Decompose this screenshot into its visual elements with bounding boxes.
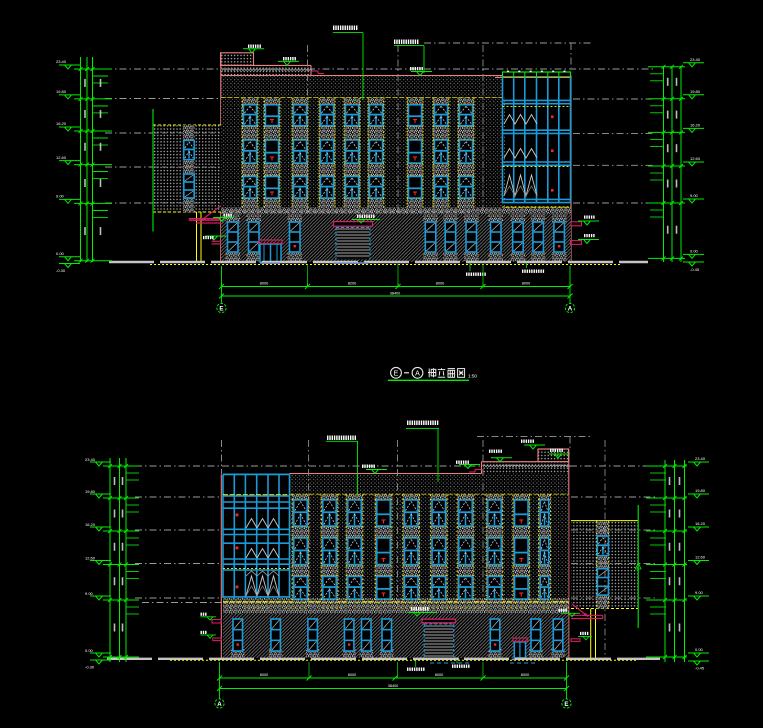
svg-text:12.60: 12.60 <box>695 555 706 560</box>
svg-text:E: E <box>219 306 223 313</box>
svg-text:19.80: 19.80 <box>695 488 706 493</box>
svg-text:38400: 38400 <box>390 291 401 295</box>
svg-text:0.00: 0.00 <box>695 647 704 652</box>
svg-text:12.60: 12.60 <box>85 556 96 561</box>
svg-text:0.00: 0.00 <box>85 648 94 653</box>
svg-text:A: A <box>415 370 420 377</box>
svg-text:E: E <box>394 370 399 377</box>
svg-text:8000: 8000 <box>436 282 444 286</box>
svg-text:19.80: 19.80 <box>56 89 67 94</box>
svg-text:-0.45: -0.45 <box>695 666 705 671</box>
svg-text:16.20: 16.20 <box>85 522 96 527</box>
svg-text:23.40: 23.40 <box>56 59 67 64</box>
svg-text:0.00: 0.00 <box>56 251 65 256</box>
svg-text:19.80: 19.80 <box>690 89 701 94</box>
svg-text:0.00: 0.00 <box>690 249 699 254</box>
svg-text:-0.30: -0.30 <box>56 268 66 273</box>
svg-text:12.60: 12.60 <box>56 155 67 160</box>
svg-text:8000: 8000 <box>435 673 443 677</box>
svg-text:12.60: 12.60 <box>690 156 701 161</box>
svg-text:8000: 8000 <box>260 673 268 677</box>
svg-text:1:50: 1:50 <box>468 374 477 379</box>
svg-text:9.00: 9.00 <box>690 193 699 198</box>
svg-text:19.80: 19.80 <box>85 489 96 494</box>
svg-text:9.00: 9.00 <box>85 591 94 596</box>
svg-text:23.40: 23.40 <box>690 57 701 62</box>
svg-text:-0.30: -0.30 <box>85 665 95 670</box>
svg-text:8000: 8000 <box>521 673 529 677</box>
svg-text:8000: 8000 <box>522 282 530 286</box>
svg-text:A: A <box>217 701 222 708</box>
svg-text:9.00: 9.00 <box>695 590 704 595</box>
svg-text:8200: 8200 <box>348 282 356 286</box>
svg-text:23.40: 23.40 <box>695 456 706 461</box>
svg-text:16.20: 16.20 <box>695 521 706 526</box>
svg-text:E: E <box>564 701 568 708</box>
svg-text:38400: 38400 <box>388 684 399 688</box>
svg-text:8000: 8000 <box>348 673 356 677</box>
svg-text:16.20: 16.20 <box>690 123 701 128</box>
svg-text:-0.45: -0.45 <box>690 267 700 272</box>
svg-text:8000: 8000 <box>260 282 268 286</box>
svg-text:16.20: 16.20 <box>56 121 67 126</box>
svg-text:A: A <box>568 306 573 313</box>
svg-text:23.40: 23.40 <box>85 457 96 462</box>
svg-text:9.00: 9.00 <box>56 194 65 199</box>
